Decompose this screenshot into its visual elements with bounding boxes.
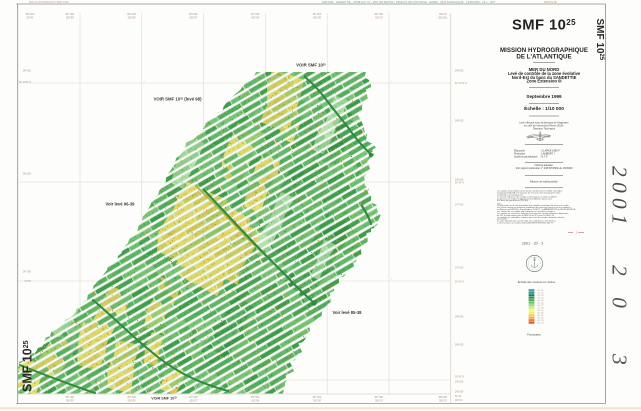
svg-text:002°06': 002°06' <box>128 16 137 19</box>
svg-text:VOIR SMF 1025: VOIR SMF 1025 <box>296 62 326 67</box>
svg-text:51°47'30" N: 51°47'30" N <box>455 83 467 85</box>
svg-text:Voir levé 96-39: Voir levé 96-39 <box>105 202 135 207</box>
svg-text:248 000: 248 000 <box>23 174 32 176</box>
svg-text:002°05': 002°05' <box>66 400 75 403</box>
svg-text:247 000: 247 000 <box>455 268 464 270</box>
svg-text:002°09': 002°09' <box>313 400 322 403</box>
svg-text:Zone Extension 0I: Zone Extension 0I <box>526 79 561 84</box>
svg-text:002°11': 002°11' <box>455 400 463 402</box>
svg-text:358 000: 358 000 <box>438 16 447 19</box>
svg-text:33 - 34: 33 - 34 <box>538 322 544 324</box>
svg-text:002°10': 002°10' <box>375 400 384 403</box>
svg-text:VOIR SMF 1025: VOIR SMF 1025 <box>151 396 177 400</box>
svg-text:Système géodésique: Système géodésique <box>514 155 538 158</box>
svg-text:DE L'ATLANTIQUE: DE L'ATLANTIQUE <box>516 54 571 61</box>
svg-text:246 500: 246 500 <box>455 317 464 319</box>
svg-text:246 000: 246 000 <box>455 345 464 347</box>
svg-text:248 000: 248 000 <box>455 180 464 182</box>
svg-text:Minute de bathymétrie: Minute de bathymétrie <box>530 179 558 183</box>
svg-text:002°06': 002°06' <box>128 400 137 403</box>
svg-text:2 0: 2 0 <box>608 265 632 316</box>
svg-text:a été inscritées au sondeur l: a été inscritées au sondeur latéral EDGE… <box>497 222 553 225</box>
svg-text:002°09': 002°09' <box>313 16 322 19</box>
svg-text:SMF 10-25 MISSION HYDRO 1999: SMF 10-25 MISSION HYDRO 1999 <box>29 1 69 4</box>
svg-text:002°08': 002°08' <box>251 16 260 19</box>
svg-text:002°08': 002°08' <box>251 400 260 403</box>
svg-text:Voir rapport particulier n° 24: Voir rapport particulier n° 248 SHOM/E d… <box>516 167 573 170</box>
svg-text:247 500: 247 500 <box>455 205 464 207</box>
svg-text:51°46' N: 51°46' N <box>455 183 464 185</box>
svg-text:Voir levé 85-38: Voir levé 85-38 <box>332 310 362 315</box>
svg-text:248 500: 248 500 <box>455 121 464 123</box>
svg-text:002°07': 002°07' <box>190 400 199 403</box>
svg-text:245 500: 245 500 <box>455 382 464 384</box>
svg-text:MINUTE 2B: MINUTE 2B <box>544 1 557 4</box>
svg-text:2001 - 20 - 3: 2001 - 20 - 3 <box>522 241 544 245</box>
svg-text:à la base du grand phare (258: à la base du grand phare (258 Ea). <box>497 199 529 202</box>
svg-text:51°48': 51°48' <box>27 16 34 19</box>
svg-text:VOIR SMF 1025 (levé 98): VOIR SMF 1025 (levé 98) <box>153 96 202 101</box>
svg-text:51°47'30" N: 51°47'30" N <box>19 82 31 84</box>
svg-text:3: 3 <box>608 353 632 365</box>
svg-text:Septembre 1999: Septembre 1999 <box>526 94 562 99</box>
svg-text:2001: 2001 <box>608 166 632 230</box>
svg-text:SMF1025 - SANDETTIE - ZONE EXT: SMF1025 - SANDETTIE - ZONE EXT 01 - MNT … <box>322 1 496 4</box>
svg-text:249 000: 249 000 <box>455 71 464 73</box>
svg-text:51°43' N: 51°43' N <box>455 377 464 379</box>
svg-text:51°45': 51°45' <box>25 281 32 283</box>
svg-text:245 000: 245 000 <box>455 392 464 394</box>
svg-text:002°10': 002°10' <box>439 400 448 403</box>
svg-text:002°10': 002°10' <box>375 16 384 19</box>
svg-text:002°07': 002°07' <box>190 16 199 19</box>
svg-text:: N.T.F.: : N.T.F. <box>540 155 548 158</box>
svg-text:Ponctuation: Ponctuation <box>527 332 541 336</box>
svg-text:247 000: 247 000 <box>23 272 32 274</box>
svg-text:249 000: 249 000 <box>23 71 32 73</box>
svg-text:51°42': 51°42' <box>455 396 462 398</box>
svg-text:002°05': 002°05' <box>66 16 75 19</box>
svg-text:Directeur Technique: Directeur Technique <box>533 128 556 131</box>
svg-text:51°45' N: 51°45' N <box>455 282 464 284</box>
